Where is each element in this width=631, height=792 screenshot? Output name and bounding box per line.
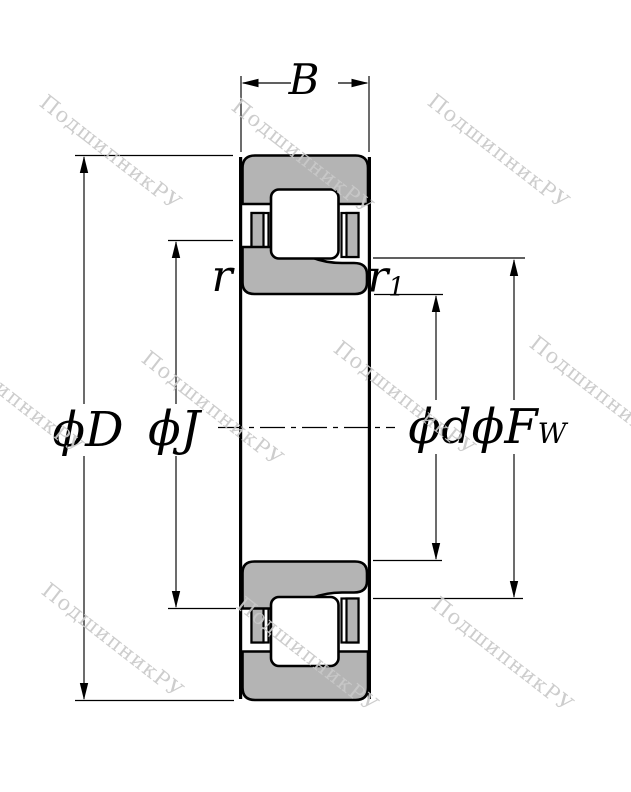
cage-top-right [342,213,359,257]
dim-label-bore-diameter: ϕd [408,403,471,451]
dim-label-roller-inscribed-main: ϕF [472,399,538,455]
bearing-bottom-section [243,562,369,701]
dim-label-roller-inscribed-sub: W [538,417,567,450]
dim-label-chamfer-r1-sub: 1 [388,273,405,303]
dim-label-rib-diameter: ϕJ [148,405,200,453]
roller-bottom [271,597,339,666]
cage-bottom-right [342,599,359,643]
roller-top [271,190,339,259]
dim-label-width-B: B [289,59,320,101]
bearing-diagram [0,0,631,792]
dim-label-roller-inscribed-diameter: ϕFW [472,403,567,451]
dim-label-outer-diameter: ϕD [52,406,123,454]
dim-label-chamfer-r: r [211,255,232,299]
dim-label-chamfer-r1-main: r [367,252,388,303]
dim-label-chamfer-r1: r1 [367,256,405,301]
bearing-top-section [243,156,369,295]
bearing-drawing-page: { "diagram": { "type": "cylindrical-roll… [0,0,631,792]
